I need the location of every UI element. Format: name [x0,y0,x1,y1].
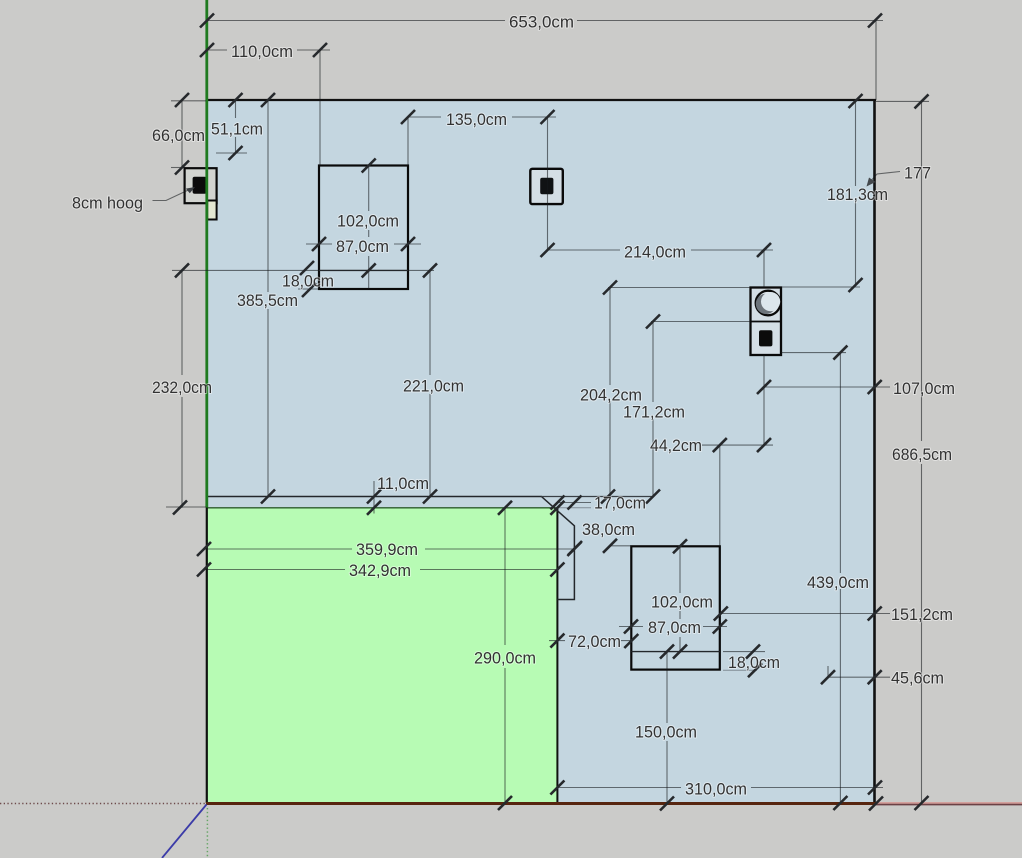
svg-text:51,1cm: 51,1cm [211,121,263,139]
svg-text:87,0cm: 87,0cm [648,619,701,637]
svg-text:11,0cm: 11,0cm [377,475,429,493]
svg-text:17,0cm: 17,0cm [594,495,646,513]
svg-text:38,0cm: 38,0cm [582,521,635,539]
svg-text:439,0cm: 439,0cm [807,574,869,592]
svg-text:102,0cm: 102,0cm [337,213,399,231]
svg-text:18,0cm: 18,0cm [728,654,780,672]
svg-text:342,9cm: 342,9cm [349,562,411,580]
svg-text:110,0cm: 110,0cm [231,43,293,61]
svg-text:151,2cm: 151,2cm [891,606,953,624]
svg-text:214,0cm: 214,0cm [624,244,686,262]
svg-text:44,2cm: 44,2cm [650,437,702,455]
svg-text:232,0cm: 232,0cm [152,379,212,397]
svg-text:45,6cm: 45,6cm [891,670,944,688]
svg-text:8cm hoog: 8cm hoog [72,195,143,213]
svg-text:135,0cm: 135,0cm [446,111,507,129]
svg-text:290,0cm: 290,0cm [474,650,536,668]
svg-text:66,0cm: 66,0cm [152,127,205,145]
svg-text:87,0cm: 87,0cm [336,238,389,256]
svg-text:18,0cm: 18,0cm [282,273,334,291]
svg-text:107,0cm: 107,0cm [893,380,955,398]
svg-text:359,9cm: 359,9cm [356,541,418,559]
svg-text:310,0cm: 310,0cm [685,781,747,799]
svg-text:653,0cm: 653,0cm [509,14,574,32]
svg-text:204,2cm: 204,2cm [580,387,642,405]
svg-text:171,2cm: 171,2cm [623,404,685,422]
svg-text:385,5cm: 385,5cm [237,292,298,310]
svg-text:177: 177 [904,165,931,183]
svg-text:686,5cm: 686,5cm [892,446,952,464]
svg-text:72,0cm: 72,0cm [568,633,621,651]
svg-text:102,0cm: 102,0cm [651,594,713,612]
svg-text:150,0cm: 150,0cm [635,724,697,742]
svg-text:181,3cm: 181,3cm [827,186,888,204]
svg-text:221,0cm: 221,0cm [403,378,464,396]
